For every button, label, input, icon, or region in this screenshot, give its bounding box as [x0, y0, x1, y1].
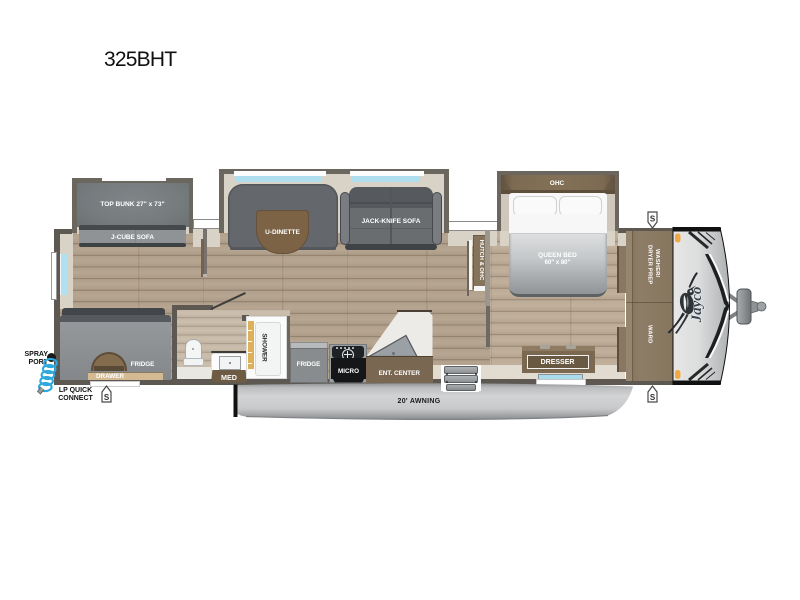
svg-text:20' AWNING: 20' AWNING — [398, 398, 441, 405]
svg-text:Jayco: Jayco — [689, 287, 705, 324]
svg-text:S: S — [649, 393, 655, 402]
svg-text:S: S — [103, 393, 109, 402]
svg-text:S: S — [649, 215, 655, 224]
